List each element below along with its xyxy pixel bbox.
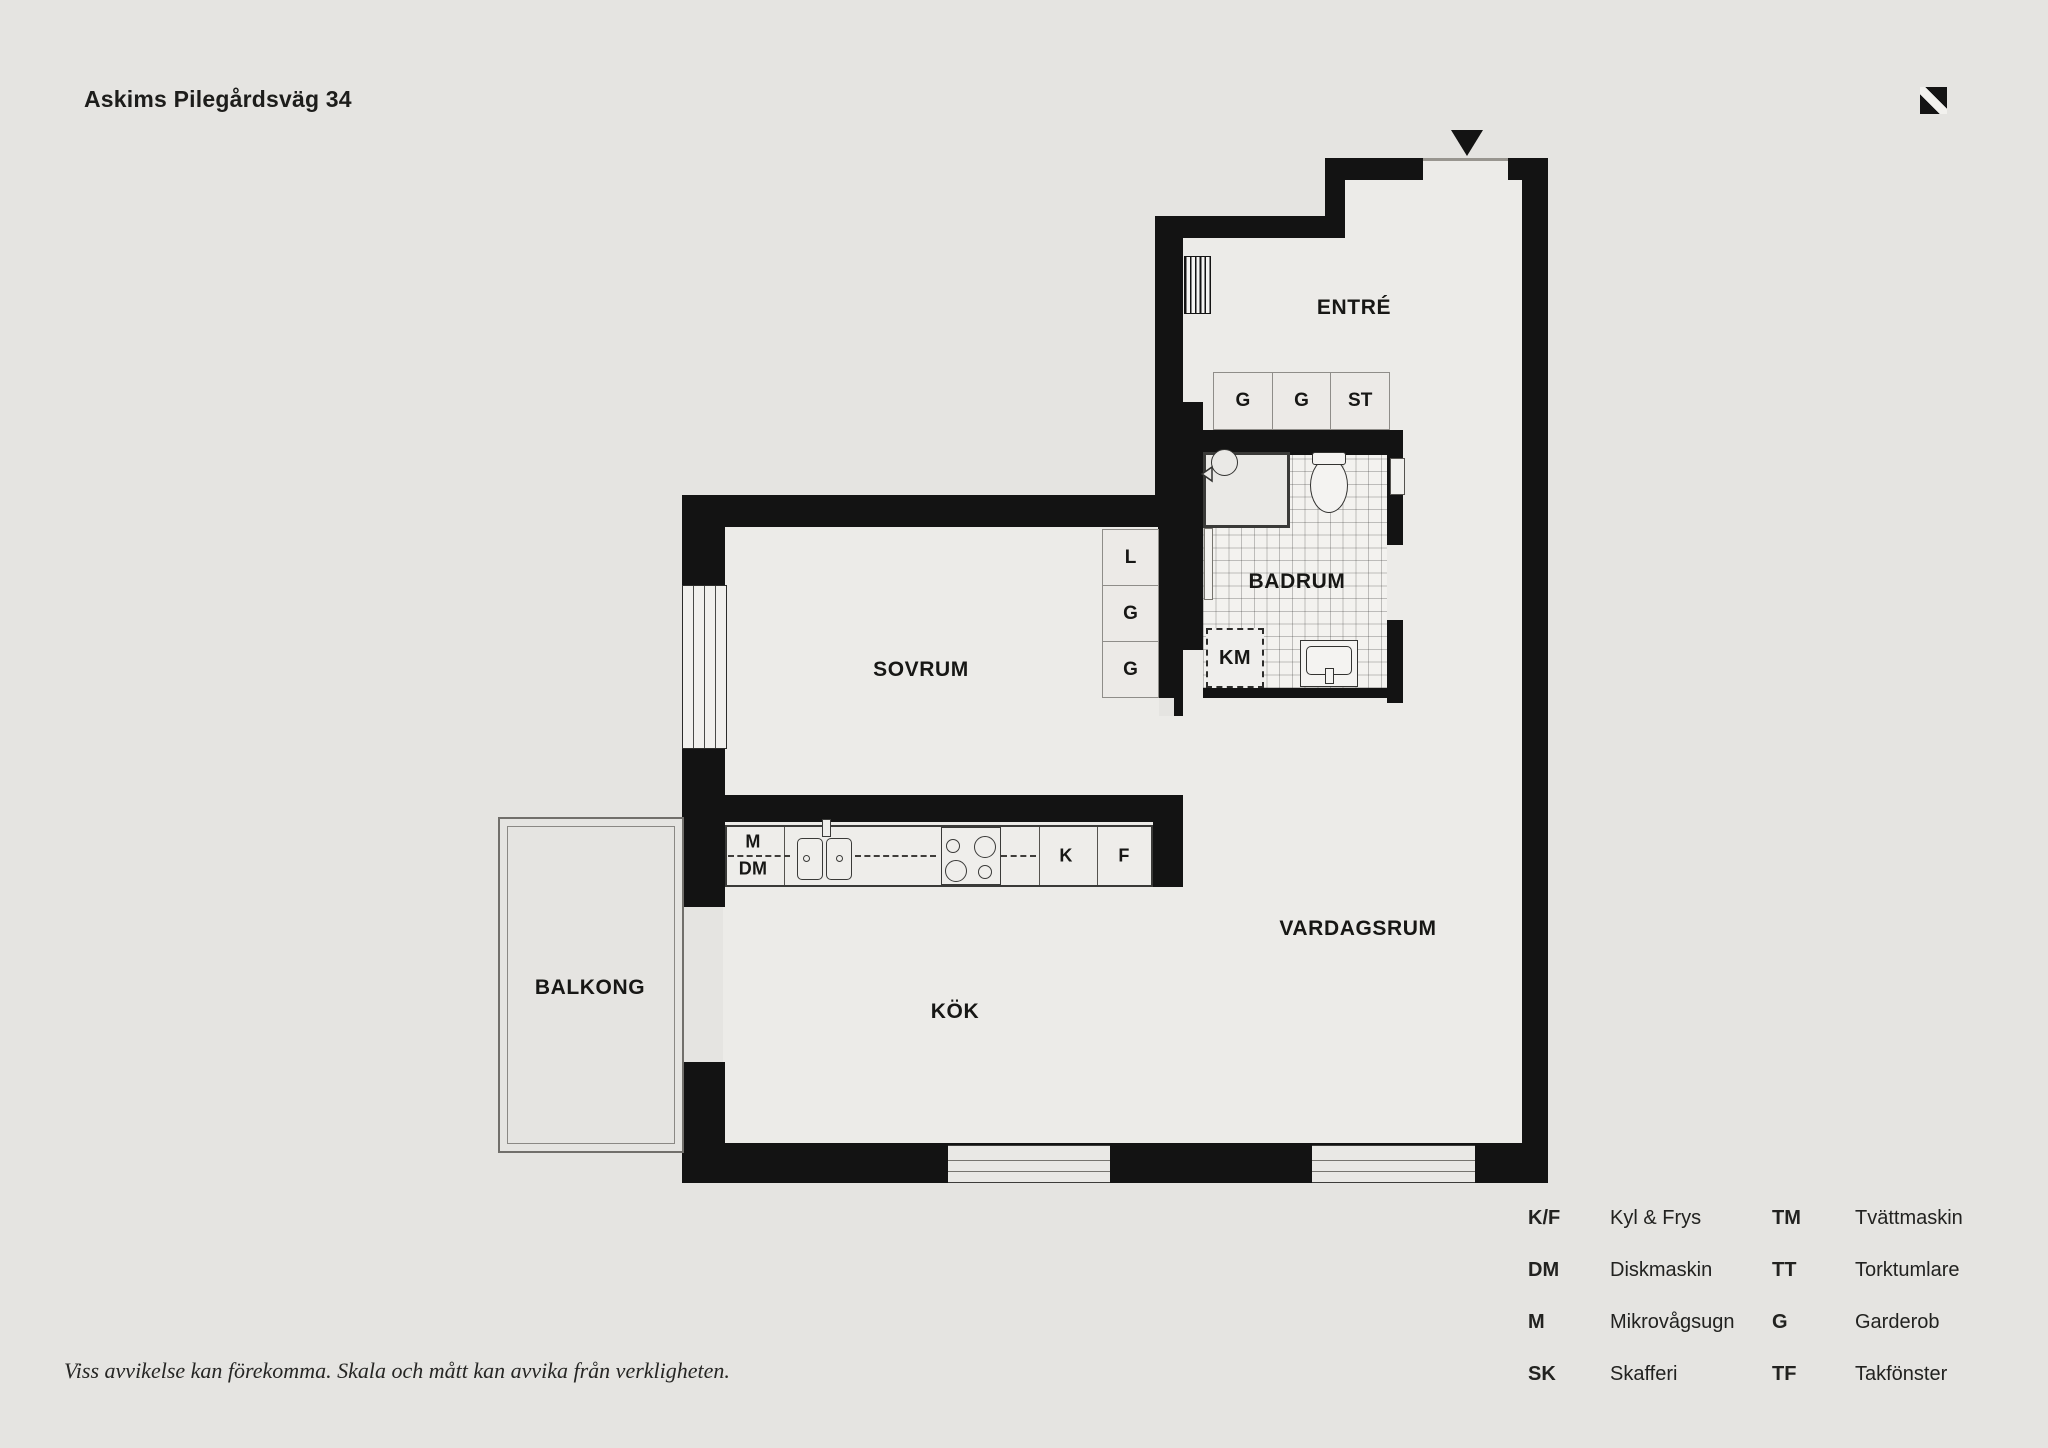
- washer-km-box: KM: [1206, 628, 1264, 688]
- hob-burner-small: [978, 865, 992, 879]
- radiator-hatch: [1184, 256, 1211, 314]
- wall-niche: [1390, 458, 1405, 495]
- legend-abbr: SK: [1528, 1363, 1610, 1386]
- room-label-badrum: BADRUM: [1249, 570, 1346, 594]
- legend-abbr: G: [1772, 1311, 1855, 1334]
- window-bottom-vardagsrum: [1312, 1145, 1475, 1183]
- hob-burner-large: [974, 836, 996, 858]
- legend-label: Skafferi: [1610, 1363, 1772, 1386]
- wall-kok-right: [1153, 817, 1183, 887]
- closets-sovrum: L G G: [1102, 529, 1159, 698]
- legend-label: Takfönster: [1855, 1363, 1998, 1386]
- legend-label: Garderob: [1855, 1311, 1998, 1334]
- label-kyl: K: [1059, 846, 1072, 867]
- room-label-entre: ENTRÉ: [1317, 296, 1391, 320]
- window-bottom-kok: [948, 1145, 1110, 1183]
- closets-entre: G G ST: [1213, 372, 1390, 430]
- floor-doorway-badrum: [1183, 650, 1203, 698]
- wall-left-b: [682, 747, 725, 907]
- closet-st: ST: [1331, 372, 1390, 430]
- hob-burner-small: [946, 839, 960, 853]
- floor-entre-upper: [1345, 180, 1522, 238]
- counter-dash-line: [1001, 855, 1036, 857]
- sink-drain: [803, 855, 810, 862]
- legend: K/F Kyl & Frys TM Tvättmaskin DM Diskmas…: [1528, 1192, 1998, 1400]
- closet-l: L: [1102, 529, 1159, 586]
- entry-door-threshold: [1423, 158, 1508, 161]
- floor-corridor: [1403, 430, 1522, 698]
- wall-kitchen: [723, 795, 1183, 822]
- entrance-arrow-icon: [1451, 130, 1483, 156]
- wall-entre-left: [1155, 216, 1183, 527]
- room-label-balkong: BALKONG: [535, 976, 645, 1000]
- floor-doorway-sovrum: [1159, 716, 1183, 795]
- disclaimer-text: Viss avvikelse kan förekomma. Skala och …: [64, 1358, 730, 1384]
- legend-label: Diskmaskin: [1610, 1259, 1772, 1282]
- closet-g-1: G: [1213, 372, 1273, 430]
- legend-abbr: DM: [1528, 1259, 1610, 1282]
- wall-left-a: [682, 495, 725, 587]
- label-diskmaskin: DM: [739, 859, 768, 880]
- wall-right: [1522, 158, 1548, 1183]
- toilet-tank: [1312, 452, 1346, 465]
- closet-g-4: G: [1102, 642, 1159, 698]
- room-label-kok: KÖK: [931, 1000, 979, 1024]
- legend-label: Mikrovågsugn: [1610, 1311, 1772, 1334]
- sink-drain: [836, 855, 843, 862]
- shower-spray-icon: [1199, 464, 1215, 484]
- wall-upper-left-horizontal: [1155, 216, 1345, 238]
- wall-badrum-right-lower: [1387, 620, 1403, 703]
- floor-entre-doorstrip: [1423, 161, 1508, 180]
- shower-screen: [1204, 528, 1213, 600]
- legend-label: Torktumlare: [1855, 1259, 1998, 1282]
- wall-badrum-left: [1183, 455, 1203, 650]
- label-frys: F: [1118, 846, 1129, 867]
- legend-abbr: K/F: [1528, 1207, 1610, 1230]
- bathroom-sink-tap: [1325, 668, 1334, 684]
- legend-abbr: TT: [1772, 1259, 1855, 1282]
- wall-badrum-bottom: [1203, 688, 1403, 698]
- counter-dash-line: [728, 855, 790, 857]
- room-label-vardagsrum: VARDAGSRUM: [1279, 917, 1436, 941]
- legend-label: Tvättmaskin: [1855, 1207, 1998, 1230]
- floor-badrum-door-right: [1387, 545, 1403, 620]
- toilet-bowl: [1310, 458, 1348, 513]
- kitchen-sink-basin-left: [797, 838, 823, 880]
- counter-divider: [1097, 827, 1098, 885]
- legend-abbr: M: [1528, 1311, 1610, 1334]
- floor-vardagsrum: [1183, 698, 1522, 822]
- kitchen-faucet: [822, 819, 831, 837]
- legend-label: Kyl & Frys: [1610, 1207, 1772, 1230]
- wall-sovrum-right-stub: [1174, 698, 1183, 716]
- closet-g-2: G: [1273, 372, 1332, 430]
- room-label-sovrum: SOVRUM: [873, 658, 969, 682]
- label-mikrovagsugn: M: [745, 832, 760, 853]
- closet-g-3: G: [1102, 586, 1159, 642]
- counter-divider: [1039, 827, 1040, 885]
- hob-burner-large: [945, 860, 967, 882]
- shower-head-icon: [1211, 449, 1238, 476]
- wall-sovrum-top: [682, 495, 1183, 527]
- legend-abbr: TM: [1772, 1207, 1855, 1230]
- wall-sovrum-right: [1158, 527, 1183, 698]
- window-sovrum: [682, 585, 727, 749]
- stove-hob: [941, 827, 1001, 885]
- counter-dash-line: [855, 855, 936, 857]
- legend-abbr: TF: [1772, 1363, 1855, 1386]
